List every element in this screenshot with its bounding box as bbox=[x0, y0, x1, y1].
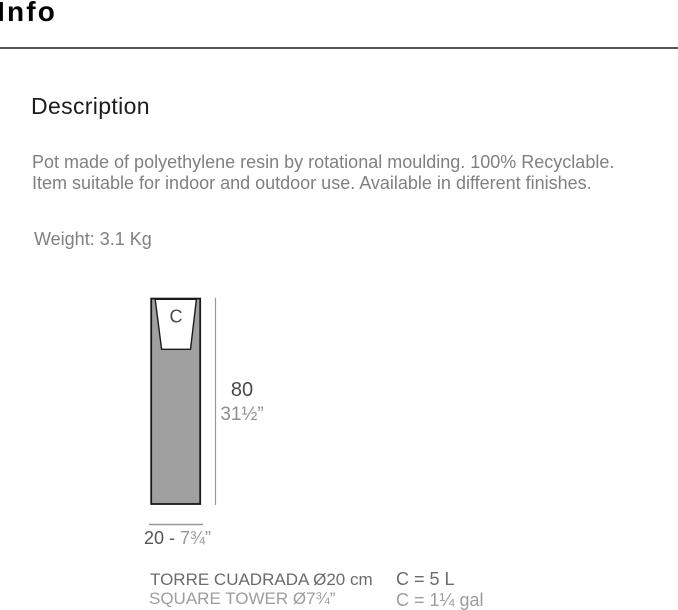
svg-text:C: C bbox=[170, 307, 183, 327]
